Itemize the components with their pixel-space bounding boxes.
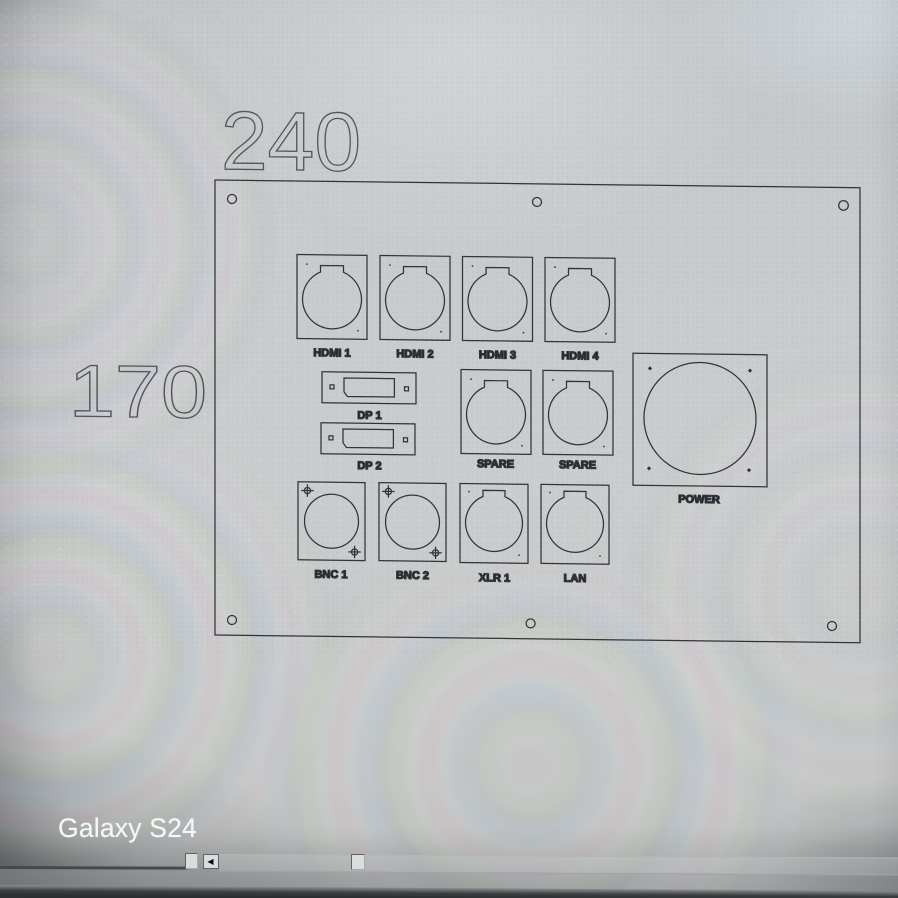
svg-text:SPARE: SPARE	[477, 458, 514, 470]
svg-text:240: 240	[221, 94, 361, 189]
svg-text:SPARE: SPARE	[559, 459, 596, 471]
svg-text:HDMI 2: HDMI 2	[396, 348, 433, 360]
svg-text:DP 2: DP 2	[357, 460, 381, 472]
svg-text:HDMI 3: HDMI 3	[479, 349, 516, 361]
svg-text:POWER: POWER	[678, 494, 720, 506]
svg-text:XLR 1: XLR 1	[479, 572, 510, 584]
svg-text:DP 1: DP 1	[357, 410, 381, 422]
svg-text:LAN: LAN	[564, 573, 587, 585]
svg-text:170: 170	[69, 349, 207, 434]
svg-text:HDMI 4: HDMI 4	[561, 350, 599, 362]
svg-text:HDMI 1: HDMI 1	[313, 347, 350, 359]
svg-text:BNC 2: BNC 2	[396, 570, 429, 582]
svg-text:BNC 1: BNC 1	[314, 569, 347, 581]
